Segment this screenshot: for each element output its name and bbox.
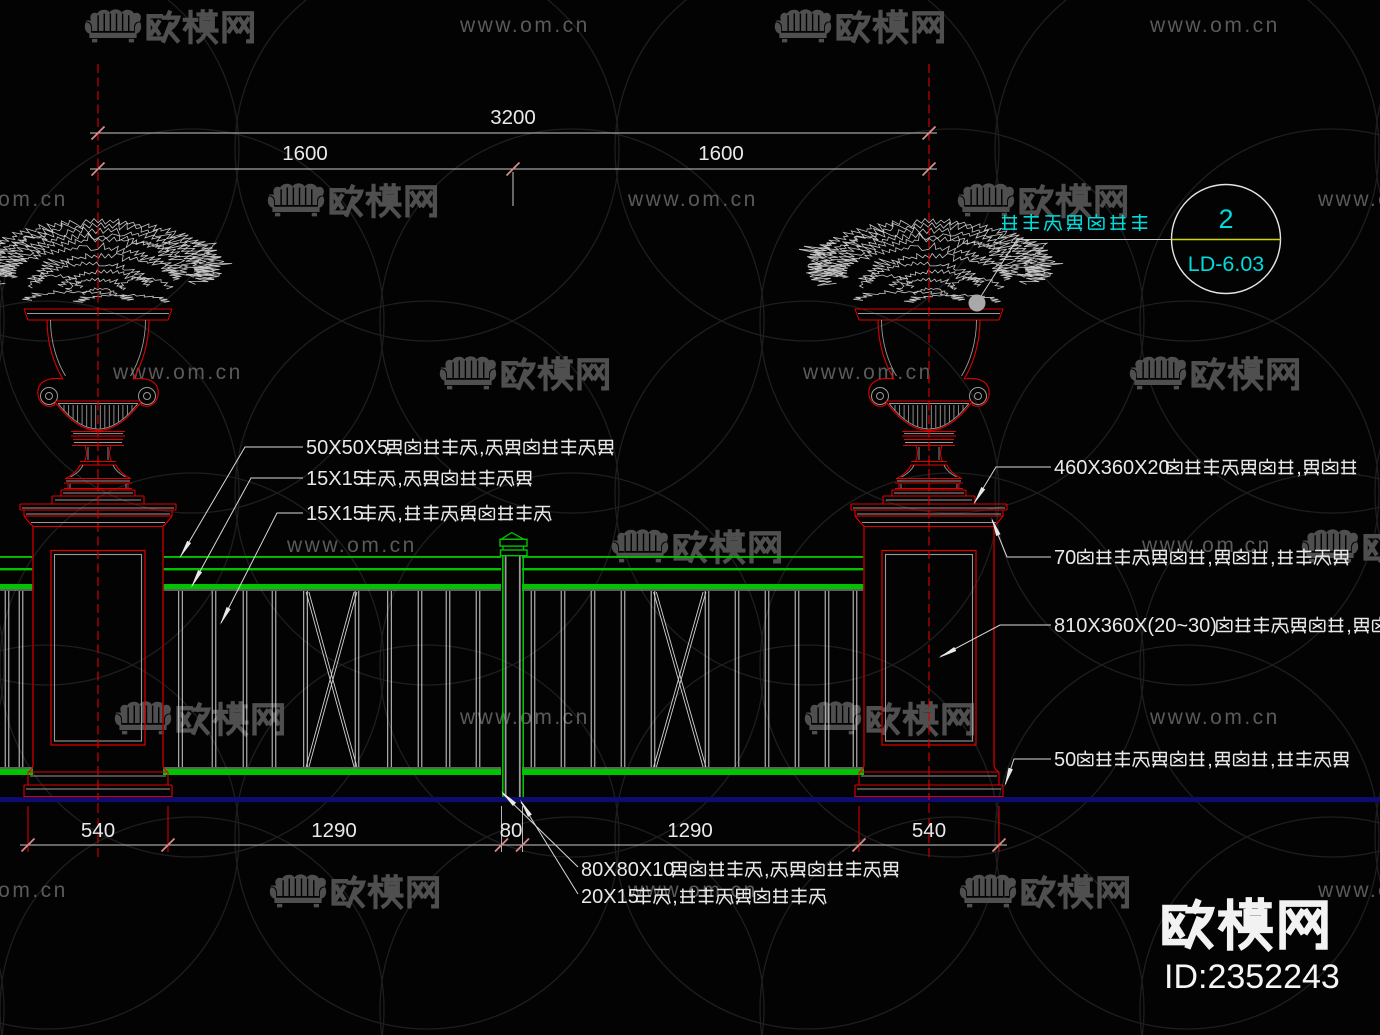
svg-text:,: , <box>764 859 770 881</box>
svg-text:www.om.cn: www.om.cn <box>459 14 590 37</box>
svg-text:540: 540 <box>912 819 946 842</box>
svg-text:80X80X10: 80X80X10 <box>581 859 674 881</box>
svg-text:www.om.cn: www.om.cn <box>627 188 758 211</box>
svg-text:50X50X5: 50X50X5 <box>306 437 388 459</box>
svg-text:www.om.cn: www.om.cn <box>459 706 590 729</box>
svg-text:www.om.cn: www.om.cn <box>112 361 243 384</box>
svg-text:www.om.cn: www.om.cn <box>1317 879 1380 902</box>
svg-text:LD-6.03: LD-6.03 <box>1188 252 1265 276</box>
svg-text:2: 2 <box>1218 204 1233 234</box>
svg-text:1600: 1600 <box>698 142 744 165</box>
svg-text:460X360X20: 460X360X20 <box>1054 457 1170 479</box>
svg-text:3200: 3200 <box>490 106 536 129</box>
svg-text:1290: 1290 <box>311 819 357 842</box>
svg-text:15X15: 15X15 <box>306 468 364 490</box>
svg-text:50: 50 <box>1054 749 1076 771</box>
svg-text:www.om.cn: www.om.cn <box>802 361 933 384</box>
svg-text:20X15: 20X15 <box>581 886 639 908</box>
svg-text:,: , <box>1207 547 1213 569</box>
svg-text:15X15: 15X15 <box>306 503 364 525</box>
svg-text:www.om.cn: www.om.cn <box>1149 14 1280 37</box>
svg-text:,: , <box>397 503 403 525</box>
svg-text:www.om.cn: www.om.cn <box>1317 188 1380 211</box>
svg-text:,: , <box>397 468 403 490</box>
svg-text:70: 70 <box>1054 547 1076 569</box>
svg-text:,: , <box>479 437 485 459</box>
svg-text:www.om.cn: www.om.cn <box>1149 706 1280 729</box>
svg-text:1600: 1600 <box>282 142 328 165</box>
svg-text:,: , <box>1270 749 1276 771</box>
svg-text:810X360X(20~30): 810X360X(20~30) <box>1054 615 1217 637</box>
svg-text:www.om.cn: www.om.cn <box>286 534 417 557</box>
svg-text:1290: 1290 <box>667 819 713 842</box>
svg-text:www.om.cn: www.om.cn <box>0 879 68 902</box>
svg-text:540: 540 <box>81 819 115 842</box>
svg-text:ID:2352243: ID:2352243 <box>1164 958 1340 996</box>
svg-text:,: , <box>1346 615 1352 637</box>
svg-text:,: , <box>1207 749 1213 771</box>
svg-text:,: , <box>1296 457 1302 479</box>
svg-text:,: , <box>672 886 678 908</box>
svg-text:,: , <box>1270 547 1276 569</box>
svg-text:www.om.cn: www.om.cn <box>0 188 68 211</box>
svg-text:80: 80 <box>500 819 523 842</box>
